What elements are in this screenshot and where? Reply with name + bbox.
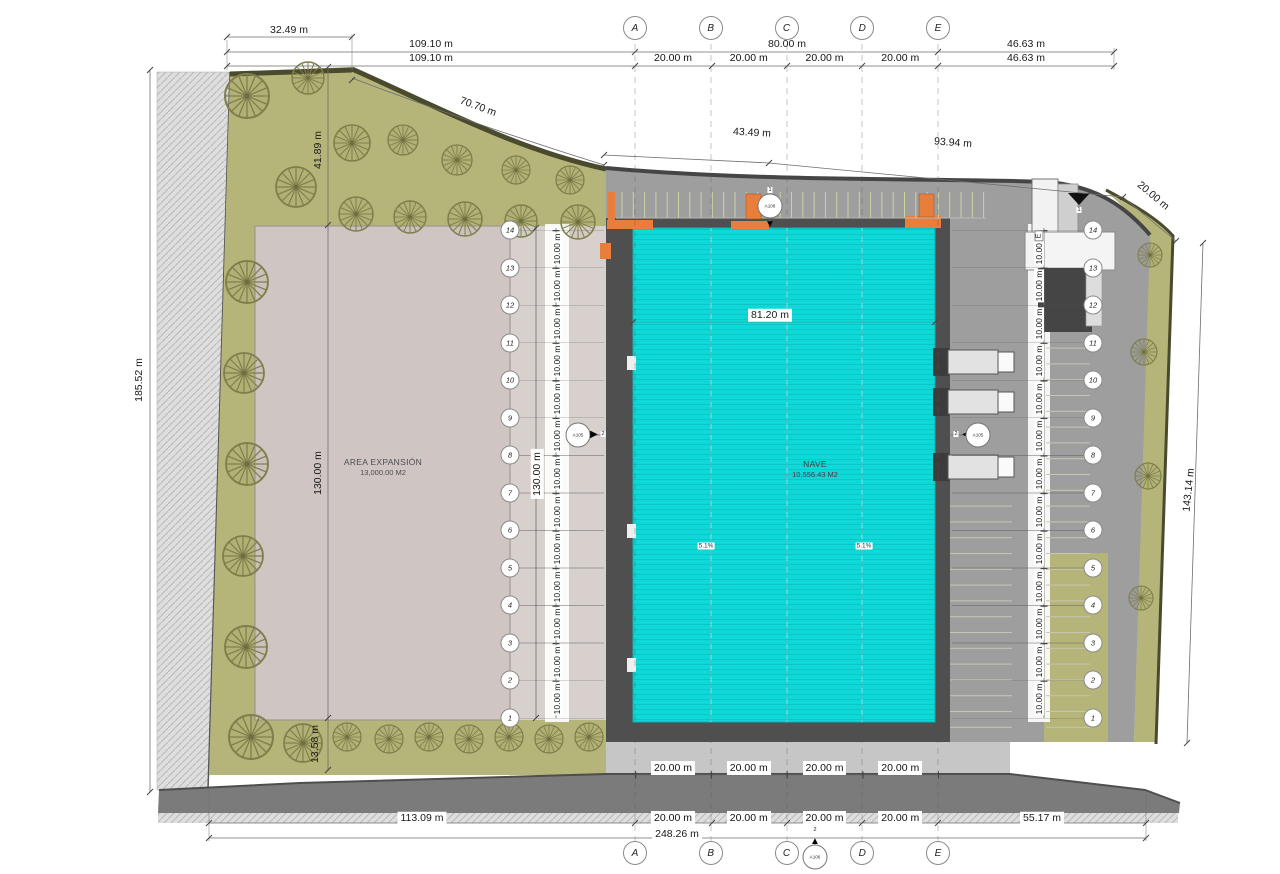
dim-bay-10m: 10.00 m: [552, 608, 562, 641]
dim-bottom-113: 113.09 m: [398, 812, 447, 825]
dim-bay-label: 20.00 m: [727, 811, 771, 825]
dim-bay-10m: 10.00 m: [552, 383, 562, 416]
grid-row-bubble: 13: [501, 258, 520, 277]
roof-slope-right: 5.1%: [856, 543, 873, 550]
section-bottom-sheet: A106: [803, 845, 828, 870]
grid-row-bubble: 9: [501, 408, 520, 427]
grid-row-bubble: 4: [501, 596, 520, 615]
dim-bay-label: 20.00 m: [803, 761, 847, 775]
grid-row-bubble: 10: [1084, 371, 1103, 390]
dim-bay-label: 20.00 m: [654, 52, 692, 64]
dim-bay-10m: 10.00 m: [552, 683, 562, 716]
expansion-name: AREA EXPANSIÓN: [344, 457, 422, 468]
dim-bay-10m: 10.00 m: [1034, 308, 1044, 341]
dim-13: 13.58 m: [310, 725, 321, 763]
dim-bay-10m: 10.00 m: [1034, 608, 1044, 641]
expansion-area-value: 13,000.00 M2: [344, 468, 422, 477]
grid-row-bubble: 11: [1084, 333, 1103, 352]
dim-bay-10m: 10.00 m: [1034, 420, 1044, 453]
grid-row-bubble: 1: [1084, 708, 1103, 727]
grid-column-bubble: C: [775, 16, 799, 40]
grid-row-bubble: 13: [1084, 258, 1103, 277]
grid-row-bubble: 2: [1084, 671, 1103, 690]
dim-bay-10m: 10.00 m: [1034, 345, 1044, 378]
section-bottom-number: 2: [812, 827, 817, 833]
site-plan: ABCDE ABCDE 1413121110987654321 14131211…: [0, 0, 1280, 874]
grid-row-bubble: 9: [1084, 408, 1103, 427]
section-top-number: 1: [767, 187, 772, 193]
parked-car: [919, 194, 934, 217]
wall-label-e: E: [1035, 231, 1044, 242]
dim-bay-10m: 10.00 m: [552, 458, 562, 491]
grid-column-bubble: D: [850, 16, 874, 40]
section-arrow-down-icon: ▼: [765, 220, 775, 230]
grid-column-bubble: B: [699, 841, 723, 865]
grid-row-bubble: 3: [501, 633, 520, 652]
section-left-number: 2: [600, 431, 605, 437]
warehouse-label: NAVE 10,556.43 M2: [792, 459, 838, 479]
dim-bay-10m: 10.00 m: [552, 645, 562, 678]
dim-bay-label: 20.00 m: [878, 811, 922, 825]
grid-row-bubble: 8: [501, 446, 520, 465]
expansion-label: AREA EXPANSIÓN 13,000.00 M2: [344, 457, 422, 477]
dim-bay-10m: 10.00 m: [552, 308, 562, 341]
grid-row-bubble: 11: [501, 333, 520, 352]
grid-row-bubble: 12: [1084, 296, 1103, 315]
dim-93: 93.94 m: [934, 136, 973, 149]
dim-top-32: 32.49 m: [270, 25, 308, 36]
dim-bay-label: 20.00 m: [803, 811, 847, 825]
grid-row-bubble: 3: [1084, 633, 1103, 652]
grid-column-bubble: E: [926, 16, 950, 40]
dim-130-west: 130.00 m: [313, 451, 324, 495]
dim-bay-10m: 10.00 m: [552, 420, 562, 453]
dim-bay-10m: 10.00 m: [1034, 458, 1044, 491]
dim-top-46a: 46.63 m: [1007, 39, 1045, 50]
dim-top-109a: 109.10 m: [409, 39, 453, 50]
dim-bay-label: 20.00 m: [651, 761, 695, 775]
grid-column-bubble: B: [699, 16, 723, 40]
dim-bay-label: 20.00 m: [727, 761, 771, 775]
dim-top-109b: 109.10 m: [409, 53, 453, 64]
grid-row-bubble: 7: [501, 483, 520, 502]
section-top-sheet: A106: [758, 194, 783, 219]
dim-bay-label: 20.00 m: [881, 52, 919, 64]
dim-bay-10m: 10.00 m: [552, 495, 562, 528]
roof-slope-left: 5.1%: [698, 543, 715, 550]
grid-row-bubble: 7: [1084, 483, 1103, 502]
dim-41: 41.89 m: [313, 131, 324, 169]
dim-west-185: 185.52 m: [134, 358, 145, 402]
grid-row-bubble: 14: [501, 221, 520, 240]
dim-building-width: 81.20 m: [748, 309, 792, 322]
dim-bay-10m: 10.00 m: [1034, 645, 1044, 678]
grid-row-bubble: 6: [1084, 521, 1103, 540]
dim-bay-10m: 10.00 m: [1034, 533, 1044, 566]
south-road: [158, 774, 1180, 813]
grid-row-bubble: 4: [1084, 596, 1103, 615]
grid-column-bubble: C: [775, 841, 799, 865]
grid-row-bubble: 14: [1084, 221, 1103, 240]
loading-docks: [933, 348, 949, 481]
grid-row-bubble: 1: [501, 708, 520, 727]
dim-bay-10m: 10.00 m: [552, 533, 562, 566]
grid-row-bubble: 2: [501, 671, 520, 690]
dim-bay-10m: 10.00 m: [552, 270, 562, 303]
entry-marker-number: 1: [1076, 207, 1081, 213]
dim-bottom-55: 55.17 m: [1020, 812, 1064, 825]
dim-bay-10m: 10.00 m: [1034, 570, 1044, 603]
dim-top-80: 80.00 m: [768, 39, 806, 50]
dim-bay-10m: 10.00 m: [552, 232, 562, 265]
grid-row-bubble: 12: [501, 296, 520, 315]
site-plan-drawing: [0, 0, 1280, 874]
dim-bay-label: 20.00 m: [651, 811, 695, 825]
grid-column-bubble: A: [623, 16, 647, 40]
section-right-number: 2: [953, 431, 958, 437]
section-left-sheet: A105: [566, 423, 591, 448]
section-right-sheet: A105: [966, 423, 991, 448]
grid-row-bubble: 5: [1084, 558, 1103, 577]
dim-bay-10m: 10.00 m: [552, 345, 562, 378]
grid-row-bubble: 10: [501, 371, 520, 390]
grid-column-bubble: A: [623, 841, 647, 865]
dim-130-mid: 130.00 m: [531, 449, 544, 499]
grid-column-bubble: D: [850, 841, 874, 865]
dim-bay-10m: 10.00 m: [1034, 495, 1044, 528]
grid-row-bubble: 6: [501, 521, 520, 540]
section-arrow-right-icon: ▶: [590, 430, 598, 440]
grid-row-bubble: 5: [501, 558, 520, 577]
dim-bay-10m: 10.00 m: [552, 570, 562, 603]
warehouse-name: NAVE: [792, 459, 838, 470]
grid-column-bubble: E: [926, 841, 950, 865]
dim-bay-10m: 10.00 m: [1034, 683, 1044, 716]
dim-bay-label: 20.00 m: [806, 52, 844, 64]
dim-top-46b: 46.63 m: [1007, 53, 1045, 64]
dim-bay-10m: 10.00 m: [1034, 270, 1044, 303]
dim-bay-label: 20.00 m: [730, 52, 768, 64]
dim-43: 43.49 m: [733, 127, 771, 139]
dim-bay-label: 20.00 m: [878, 761, 922, 775]
grid-row-bubble: 8: [1084, 446, 1103, 465]
dim-bay-10m: 10.00 m: [1034, 383, 1044, 416]
warehouse-area: 10,556.43 M2: [792, 470, 838, 479]
dim-bottom-248: 248.26 m: [652, 828, 702, 841]
